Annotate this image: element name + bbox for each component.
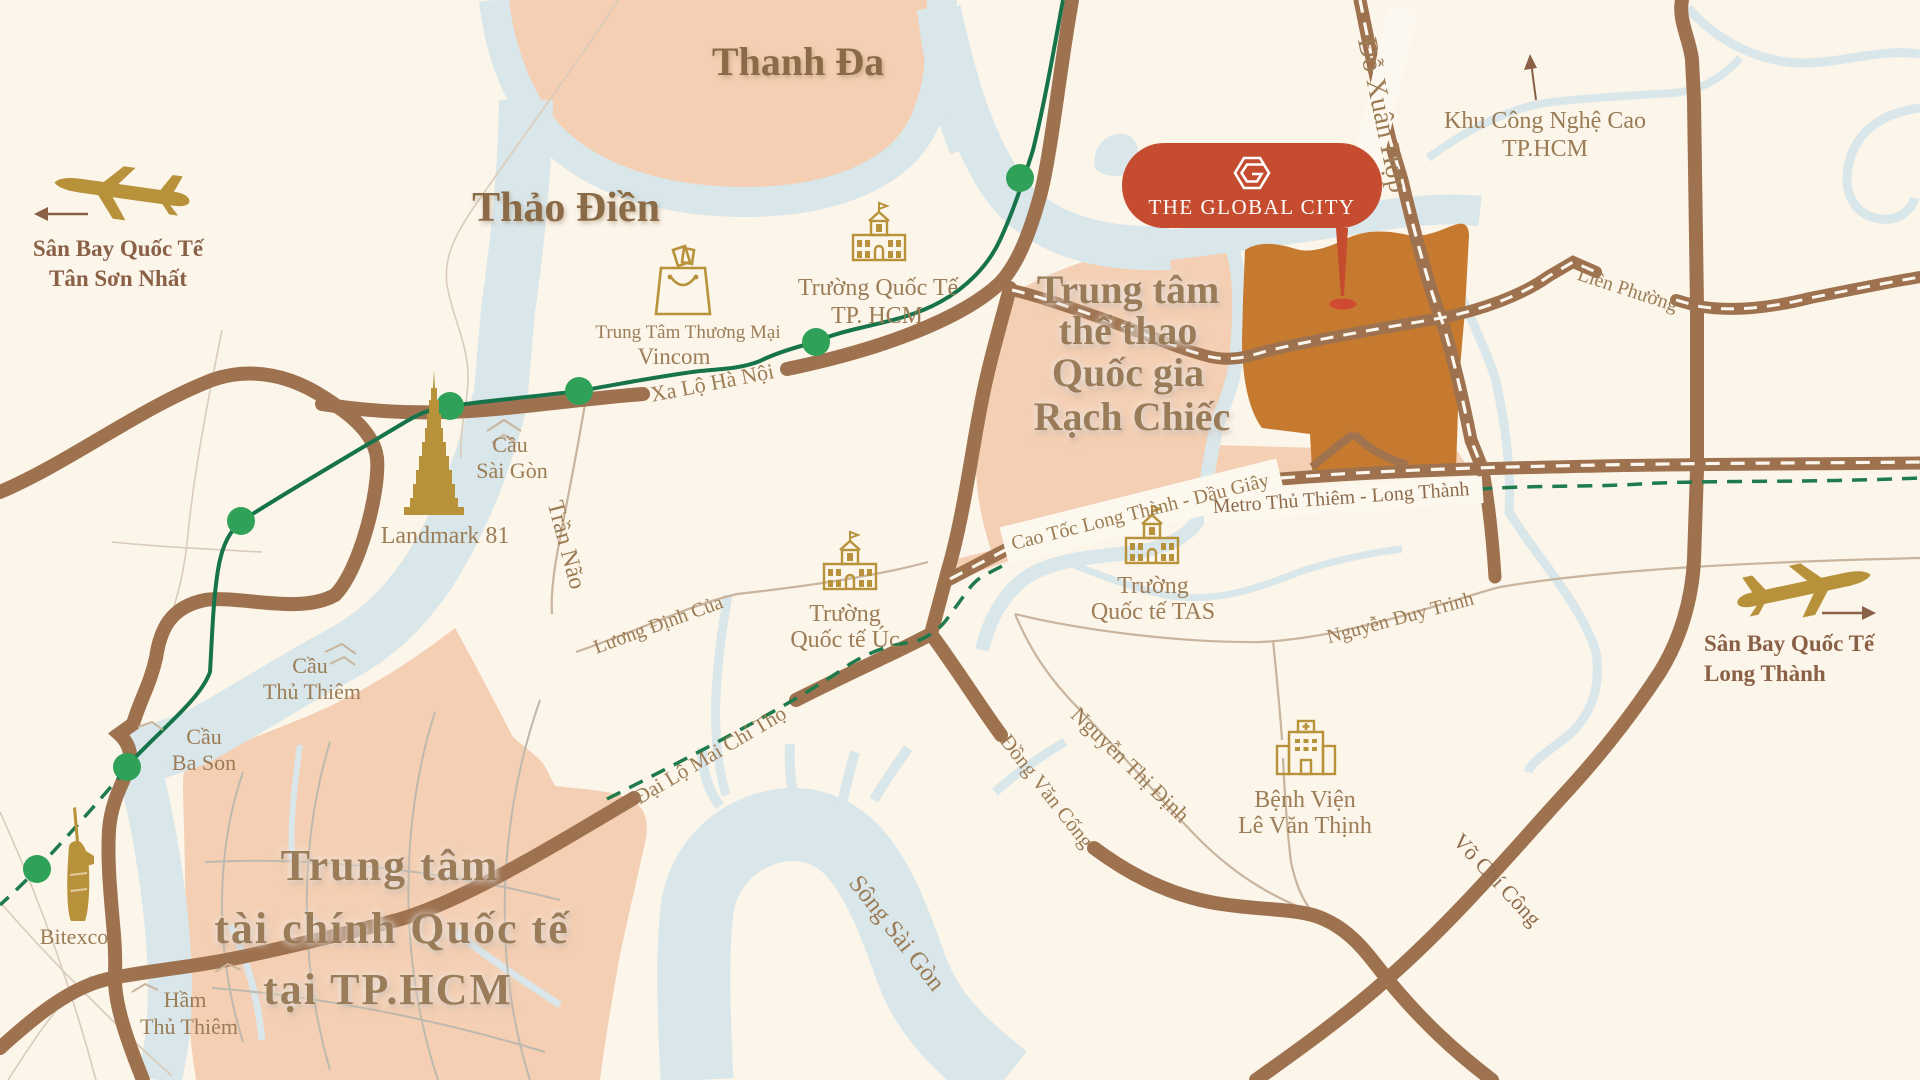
svg-text:Sài Gòn: Sài Gòn <box>476 458 548 483</box>
svg-text:Cầu: Cầu <box>492 432 527 457</box>
svg-text:thể thao: thể thao <box>1059 308 1198 353</box>
svg-text:Thủ Thiêm: Thủ Thiêm <box>140 1014 238 1039</box>
svg-text:Quốc tế Úc: Quốc tế Úc <box>790 626 899 653</box>
svg-text:Hầm: Hầm <box>164 987 207 1012</box>
svg-text:Bitexco: Bitexco <box>40 924 108 949</box>
svg-text:Lê Văn Thịnh: Lê Văn Thịnh <box>1238 813 1372 839</box>
svg-text:Cầu: Cầu <box>292 653 327 678</box>
svg-text:TP. HCM: TP. HCM <box>831 303 923 329</box>
svg-text:Vincom: Vincom <box>638 344 711 369</box>
svg-text:Trung tâm: Trung tâm <box>281 841 500 890</box>
svg-text:Trường Quốc Tế: Trường Quốc Tế <box>798 275 960 301</box>
svg-text:Trung Tâm Thương Mại: Trung Tâm Thương Mại <box>595 322 780 343</box>
svg-text:Bệnh Viện: Bệnh Viện <box>1254 787 1355 813</box>
svg-text:Trường: Trường <box>809 601 881 627</box>
svg-text:Quốc gia: Quốc gia <box>1052 350 1204 395</box>
svg-text:Ba Son: Ba Son <box>172 750 236 775</box>
svg-text:Khu Công Nghệ Cao: Khu Công Nghệ Cao <box>1444 108 1646 134</box>
svg-text:Cầu: Cầu <box>186 724 221 749</box>
svg-text:Sân Bay Quốc Tế: Sân Bay Quốc Tế <box>33 236 205 261</box>
svg-text:Thảo Điền: Thảo Điền <box>472 185 660 231</box>
svg-text:tài chính Quốc tế: tài chính Quốc tế <box>214 904 570 953</box>
svg-text:Landmark 81: Landmark 81 <box>381 523 510 549</box>
svg-text:Tân Sơn Nhất: Tân Sơn Nhất <box>49 266 187 291</box>
svg-text:Long Thành: Long Thành <box>1704 661 1826 686</box>
svg-text:Rạch Chiếc: Rạch Chiếc <box>1034 394 1231 439</box>
svg-text:Trung tâm: Trung tâm <box>1037 267 1220 312</box>
svg-text:Sân Bay Quốc Tế: Sân Bay Quốc Tế <box>1704 631 1876 656</box>
svg-text:Quốc tế TAS: Quốc tế TAS <box>1091 599 1215 625</box>
svg-text:Trường: Trường <box>1117 573 1189 599</box>
svg-text:TP.HCM: TP.HCM <box>1502 136 1588 162</box>
svg-text:Thanh Đa: Thanh Đa <box>712 39 884 84</box>
svg-text:Thủ Thiêm: Thủ Thiêm <box>263 679 361 704</box>
svg-text:THE GLOBAL CITY: THE GLOBAL CITY <box>1148 195 1355 219</box>
svg-text:tại TP.HCM: tại TP.HCM <box>263 965 513 1014</box>
